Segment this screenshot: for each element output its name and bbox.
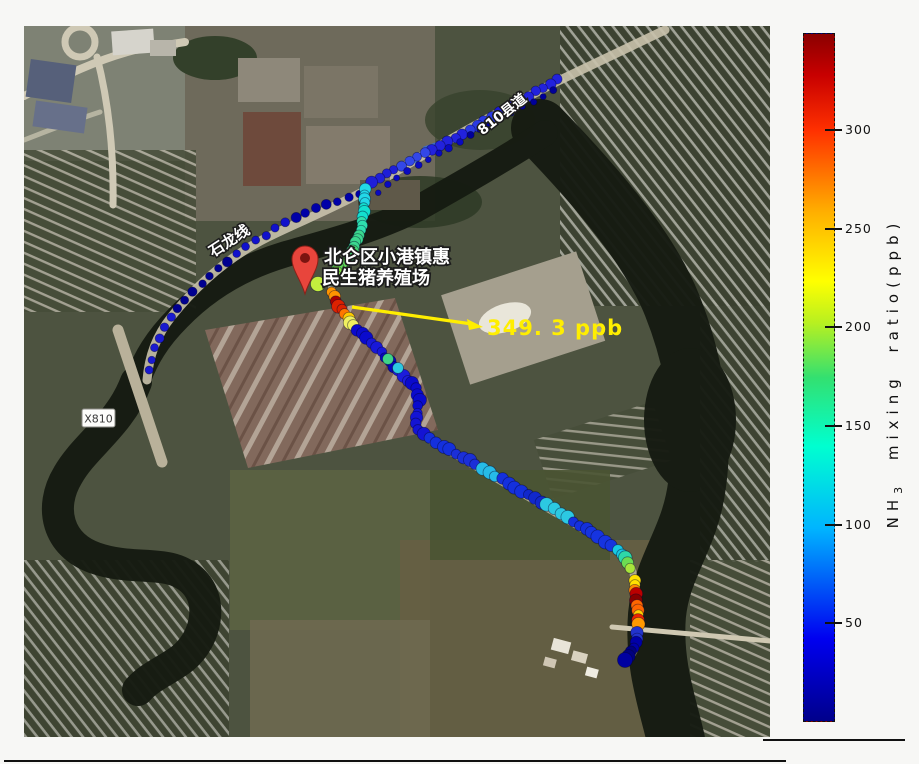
track-dot [550,87,557,94]
figure-rule-bottom [4,760,786,762]
colorbar [803,33,835,722]
colorbar-tick-label: 150 [845,418,872,433]
track-dot [385,181,392,188]
track-dot [531,99,537,105]
track-dot [199,280,207,288]
track-dot [345,193,353,201]
track-dot [311,203,320,212]
track-dot [271,224,279,232]
track-dot [155,334,164,343]
figure-rule-top [763,739,905,741]
track-dot [375,190,381,196]
track-dot [291,212,301,222]
colorbar-tickmark [825,326,842,328]
track-dot [393,363,404,374]
colorbar-tickmark [825,524,842,526]
colorbar-tick-label: 300 [845,122,872,137]
track-dot [252,236,260,244]
satellite-map: 349. 3 ppb 石龙线 810县道 北仑区小港镇惠 民生猪养殖场 X810 [24,26,770,737]
colorbar-tick-label: 100 [845,517,872,532]
track-dot [222,257,232,267]
track-dot [415,162,422,169]
track-dot [333,198,341,206]
road-badge-text: X810 [84,413,113,426]
colorbar-tickmark [825,228,842,230]
track-dot [173,304,182,313]
road-badge-x810: X810 [82,409,115,427]
colorbar-tickmark [825,622,842,624]
colorbar-tick-label: 250 [845,221,872,236]
farm-name-line2: 民生猪养殖场 [322,267,430,289]
track-dot [425,157,431,163]
track-dot [445,144,453,152]
track-dot [436,150,442,156]
track-dot [160,323,169,332]
track-dot [301,209,310,218]
track-dot [625,563,635,573]
colorbar-tick-label: 50 [845,615,863,630]
colorbar-axis-label: NH3 mixing ratio(ppb) [884,23,906,723]
track-dot [457,139,464,146]
track-dot [467,131,474,138]
farm-name-line1: 北仑区小港镇惠 [324,246,450,268]
track-dot [167,313,175,321]
track-dot [540,94,546,100]
track-dot [150,344,158,352]
track-dot [148,356,156,364]
track-dot [180,296,188,304]
peak-annotation-label: 349. 3 ppb [487,316,623,340]
colorbar-tick-label: 200 [845,319,872,334]
track-dot [262,231,270,239]
track-dot [383,354,394,365]
colorbar-tickmark [825,129,842,131]
track-dot [404,167,411,174]
track-dot [206,272,214,280]
track-dot [215,264,223,272]
track-dot [618,653,633,668]
track-dot [281,218,290,227]
colorbar-tickmark [825,425,842,427]
track-dot [321,199,331,209]
track-dot [394,175,400,181]
track-dot [233,250,241,258]
track-dot [188,287,197,296]
figure-canvas: 349. 3 ppb 石龙线 810县道 北仑区小港镇惠 民生猪养殖场 X810… [0,0,919,764]
track-dot [145,366,153,374]
track-dot [242,243,250,251]
